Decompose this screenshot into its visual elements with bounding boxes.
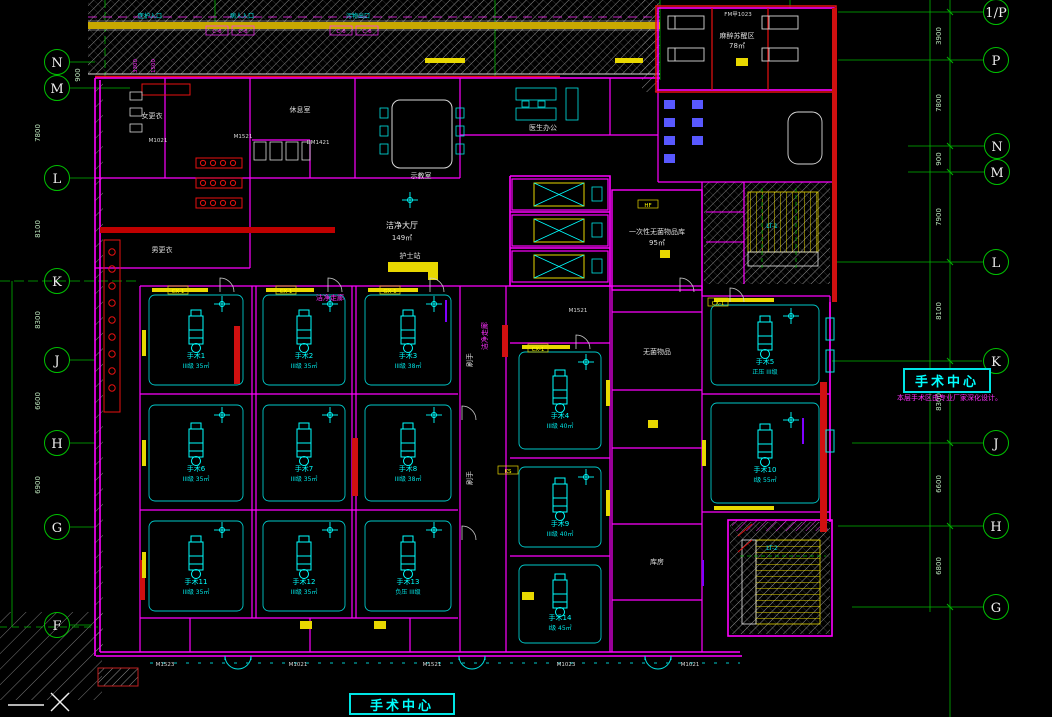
- design-note: 本层手术区由专业厂家深化设计。: [897, 393, 1002, 403]
- dim: 1500: [151, 59, 157, 73]
- drawing-title-side: 手术中心: [903, 368, 991, 393]
- equip-code: CX-1: [280, 289, 293, 295]
- room-label: 刷手: [465, 471, 474, 485]
- dim: 8100: [34, 220, 42, 238]
- window-code: C-6: [212, 29, 222, 35]
- or-name: 手术3: [399, 351, 417, 360]
- entrance-label: 污物出口: [346, 12, 370, 20]
- or-name: 手术11: [185, 577, 208, 586]
- dim: 3900: [935, 27, 943, 45]
- or-name: 手术13: [397, 577, 420, 586]
- or-name: 手术14: [549, 613, 572, 622]
- or-info: III级 35㎡: [291, 588, 318, 596]
- dim: 7900: [935, 208, 943, 226]
- or-name: 手术9: [551, 519, 569, 528]
- corridor-label: 洁净走廊: [480, 322, 489, 350]
- grid-label: 1/P: [985, 6, 1007, 21]
- dim: 6600: [34, 392, 42, 410]
- room-label-store: 一次性无菌物品库: [629, 227, 685, 236]
- door-code: M1521: [423, 662, 442, 668]
- or-info: I级 45㎡: [548, 624, 571, 632]
- walls: [95, 8, 834, 656]
- cad-viewport[interactable]: N M L K J H G F 1/P P N M L K J H G 3900…: [0, 0, 1052, 717]
- or-info: III级 35㎡: [183, 475, 210, 483]
- or-info: III级 40㎡: [547, 530, 574, 538]
- or-info: I级 55㎡: [753, 476, 776, 484]
- stair-label: LT-2: [766, 545, 778, 552]
- or-name: 手术8: [399, 464, 417, 473]
- door-code: M1021: [149, 138, 168, 144]
- door-code: M1523: [156, 662, 175, 668]
- locker-banks: [104, 84, 242, 412]
- grid-label: H: [51, 437, 62, 452]
- dim: 900: [74, 68, 82, 81]
- or-name: 手术2: [295, 351, 313, 360]
- grid-label: M: [50, 82, 63, 97]
- drawing-canvas[interactable]: N M L K J H G F 1/P P N M L K J H G 3900…: [0, 0, 1052, 717]
- grid-label: N: [991, 140, 1002, 155]
- red-walls: [100, 6, 837, 600]
- grid-label: F: [52, 619, 61, 634]
- or-name: 手术6: [187, 464, 206, 473]
- grid-label: M: [990, 166, 1003, 181]
- room-label: 护士站: [400, 251, 421, 260]
- dim: 6800: [935, 557, 943, 575]
- or-name: 手术4: [551, 411, 570, 420]
- room-area: 95㎡: [649, 239, 665, 247]
- or-name: 手术12: [293, 577, 316, 586]
- grid-label: J: [52, 354, 59, 369]
- grid-label: L: [53, 172, 62, 187]
- entrance-label: 病人入口: [230, 12, 254, 20]
- door-code: M1021: [289, 662, 308, 668]
- equip-code: CX-1: [532, 347, 545, 353]
- dimension-texts: 3900 7800 900 7900 8100 8300 6600 6800 9…: [34, 27, 943, 575]
- equip-code: HF: [644, 203, 651, 209]
- grid-label: K: [52, 275, 62, 290]
- or-info: III级 35㎡: [291, 362, 318, 370]
- entrance-label: 医护入口: [138, 12, 162, 20]
- or-name: 手术7: [295, 464, 313, 473]
- or-info: III级 35㎡: [183, 588, 210, 596]
- door-code: FM甲1023: [724, 11, 752, 18]
- or-info: III级 38㎡: [395, 362, 422, 370]
- room-label: 无菌物品: [643, 347, 671, 356]
- equip-code: GX-1: [383, 289, 396, 295]
- grid-label: L: [992, 256, 1001, 271]
- dim: 3300: [133, 59, 139, 73]
- room-label: 刷手: [465, 353, 474, 367]
- or-name: 手术10: [754, 465, 777, 474]
- stair-label: LT-1: [766, 223, 778, 230]
- equip-code: CX-1: [712, 301, 725, 307]
- door-code: M1021: [681, 662, 700, 668]
- door-code: M1023: [557, 662, 576, 668]
- window-code: C-6: [362, 29, 372, 35]
- grid-label: G: [991, 601, 1001, 616]
- door-code: M1521: [569, 308, 588, 314]
- room-label: 医生办公: [529, 123, 557, 132]
- drawing-title-bottom-text: 手术中心: [370, 695, 434, 714]
- or-info: III级 40㎡: [547, 422, 574, 430]
- door-code: M1521: [234, 134, 253, 140]
- drawing-title-side-text: 手术中心: [915, 371, 979, 390]
- drawing-title-bottom: 手术中心: [349, 693, 455, 715]
- design-note-text: 本层手术区由专业厂家深化设计。: [897, 394, 1002, 402]
- or-info: III级 38㎡: [395, 475, 422, 483]
- room-area: 78㎡: [729, 42, 745, 50]
- dim: 900: [935, 152, 943, 165]
- grid-label: J: [991, 437, 998, 452]
- corridor-label: 洁净走廊: [316, 293, 344, 302]
- or-labels: 手术1 III级 35㎡ 手术2 III级 35㎡ 手术3 III级 38㎡ 手…: [183, 351, 778, 632]
- or-name: 手术5: [756, 357, 774, 366]
- grid-label: H: [990, 520, 1001, 535]
- window-code: C-6: [336, 29, 346, 35]
- dim: 8300: [34, 311, 42, 329]
- room-label: 示教室: [411, 171, 432, 180]
- grid-label: K: [991, 355, 1001, 370]
- window-code: C-6: [238, 29, 248, 35]
- or-info: 正压 III级: [752, 368, 777, 376]
- dim: 8100: [935, 302, 943, 320]
- grid-label: P: [992, 54, 1001, 69]
- or-info: III级 35㎡: [183, 362, 210, 370]
- elevator-bank: [512, 179, 608, 282]
- room-label: 休息室: [290, 105, 311, 114]
- equip-code: KS: [504, 469, 512, 475]
- dim: 7800: [935, 94, 943, 112]
- room-label: 库房: [650, 557, 664, 566]
- equip-code: CX-1: [172, 289, 185, 295]
- dim: 6900: [34, 476, 42, 494]
- or-name: 手术1: [187, 351, 205, 360]
- room-label-recovery: 麻醉苏醒区: [720, 31, 755, 40]
- room-label-hall: 洁净大厅: [386, 220, 418, 230]
- or-info: 负压 III级: [395, 588, 420, 596]
- or-info: III级 35㎡: [291, 475, 318, 483]
- room-label: 女更衣: [142, 111, 163, 120]
- room-label: 男更衣: [152, 245, 173, 254]
- door-code: DM1421: [307, 140, 330, 146]
- room-area: 149㎡: [392, 234, 412, 242]
- dim: 6600: [935, 475, 943, 493]
- grid-label: G: [52, 521, 62, 536]
- grid-label: N: [51, 56, 62, 71]
- dim: 7800: [34, 124, 42, 142]
